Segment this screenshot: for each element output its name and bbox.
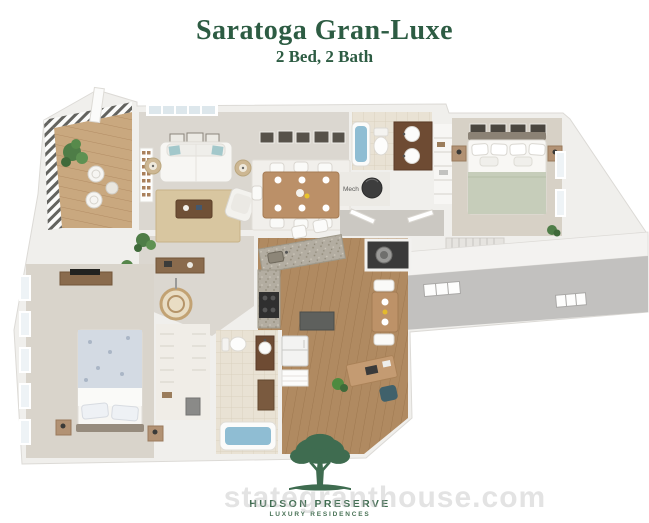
cubby-shelf — [140, 148, 153, 202]
dining-table — [263, 172, 339, 218]
toilet — [374, 128, 388, 155]
master-bedroom — [452, 118, 565, 237]
page-subtitle: 2 Bed, 2 Bath — [0, 47, 649, 67]
linen-closet — [434, 124, 454, 204]
mech-closet: Mech — [340, 172, 390, 206]
hallway — [340, 209, 444, 236]
watermark: stategranthouse.com — [224, 481, 546, 515]
bed-2 — [76, 330, 144, 432]
mech-label: Mech — [343, 186, 359, 193]
wall-art-dining — [260, 131, 345, 143]
bathtub — [352, 122, 370, 166]
sofa — [160, 142, 232, 182]
linen-cabinet-2 — [258, 380, 274, 410]
refrigerator — [282, 336, 308, 386]
kitchen-sink — [267, 251, 284, 263]
coffee-table — [176, 200, 212, 218]
console-table — [156, 258, 204, 273]
page: { "header": { "title": "Saratoga Gran-Lu… — [0, 0, 649, 523]
bar-stool — [291, 225, 307, 239]
bedroom-2 — [20, 264, 163, 458]
bed-master — [468, 132, 546, 214]
hamper — [186, 398, 200, 415]
page-title: Saratoga Gran-Luxe — [0, 16, 649, 45]
pantry — [282, 370, 308, 386]
dinette — [372, 280, 398, 345]
exterior-window — [556, 293, 587, 308]
toilet-2 — [222, 337, 246, 351]
plan-header: Saratoga Gran-Luxe 2 Bed, 2 Bath — [0, 16, 649, 67]
corner-cabinet — [300, 312, 334, 330]
bar-stool — [313, 219, 329, 233]
stove — [259, 292, 279, 318]
patio-table — [106, 182, 118, 194]
master-bathroom — [352, 112, 432, 170]
water-heater — [362, 178, 382, 198]
vanity-2 — [256, 336, 274, 370]
double-vanity — [394, 122, 432, 170]
exterior-window — [424, 281, 461, 296]
walk-in-closet — [156, 324, 210, 420]
laundry-closet — [366, 240, 410, 270]
